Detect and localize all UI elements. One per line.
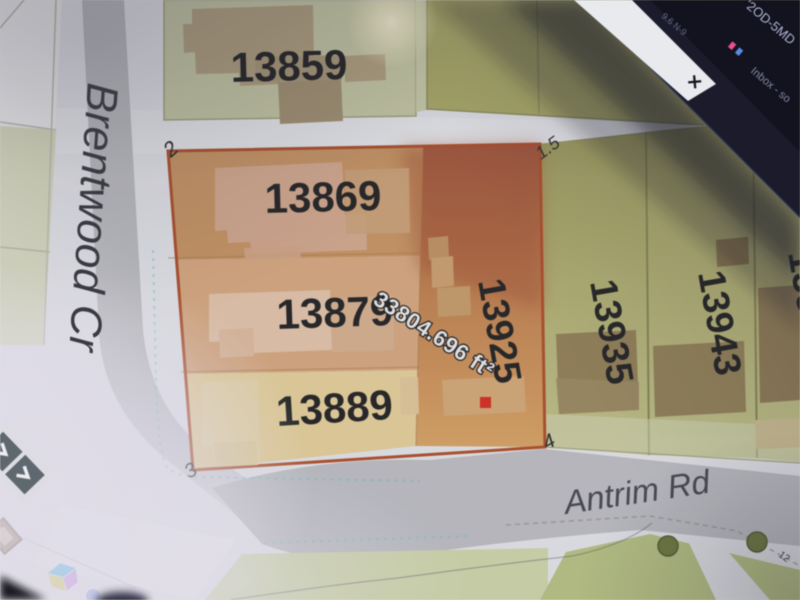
svg-text:Brentwood Cr: Brentwood Cr [59, 81, 127, 355]
